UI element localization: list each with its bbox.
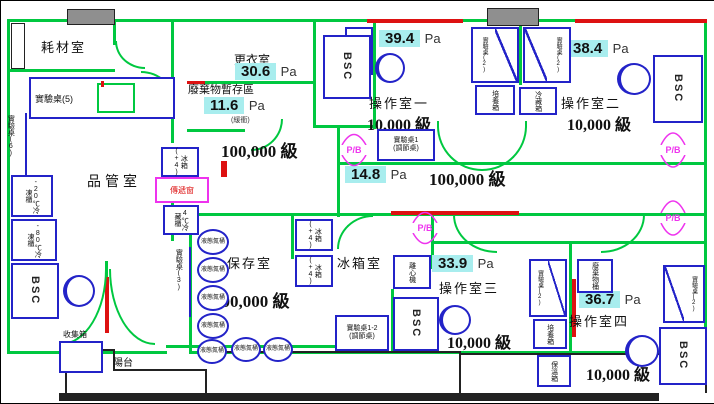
wall-segment	[313, 125, 375, 128]
room-label-storage: 保存室	[227, 253, 272, 272]
bottom-bar	[59, 393, 659, 401]
sink-fixture	[97, 83, 135, 113]
column	[11, 23, 25, 69]
incubator-op1: 培養箱	[475, 85, 515, 115]
stool-icon	[617, 63, 651, 95]
class-label-op2: 10,000 級	[567, 111, 631, 135]
pressure-op2: 38.4 Pa	[567, 40, 629, 58]
pressure-highlight: 33.9	[432, 255, 473, 272]
wall-segment	[7, 69, 115, 72]
window-marker	[221, 161, 227, 177]
pressure-waste: 11.6 Pa	[204, 97, 265, 115]
stool-icon	[439, 305, 471, 335]
hatch-fill	[548, 261, 565, 315]
step-line	[113, 369, 207, 371]
step-line	[205, 369, 207, 393]
cleanroom-floorplan: 耗材室 品管室 更衣室 30.6 Pa 廢棄物暫存區 11.6 Pa (緩衝) …	[0, 0, 714, 404]
collection-box-label: 收集箱	[63, 329, 87, 340]
room-label-op1: 操作室一	[369, 93, 429, 112]
pass-window: 傳遞窗	[155, 177, 209, 203]
ln2-tank: 液態氮桶	[197, 257, 229, 283]
wall-segment	[519, 19, 522, 85]
class-label-corridor-mid: 100,000 級	[429, 165, 506, 190]
door-arc	[115, 41, 145, 69]
ln2-tank: 液態氮桶	[263, 337, 293, 362]
fridge-plus4: 冰箱(+4)	[161, 147, 199, 177]
fridge-plus4: 冰箱(+4)	[295, 255, 333, 287]
pressure-highlight: 39.4	[379, 30, 420, 47]
ln2-tank: 液態氮桶	[197, 229, 229, 255]
passbox-right-lower: P/B	[655, 195, 691, 241]
pressure-changing: 30.6 Pa	[235, 63, 297, 81]
wall-segment	[291, 213, 294, 259]
freezer-minus80: -80℃冷凍櫃	[11, 219, 57, 261]
bench-line	[25, 113, 27, 177]
door-arc	[601, 215, 645, 253]
door-arc	[453, 215, 497, 253]
door-arc	[109, 269, 155, 345]
bench-12-label: 實驗桌1-2 (調節桌)	[335, 315, 389, 351]
passbox-corridor-left: P/B	[337, 131, 371, 169]
wall-segment	[187, 129, 245, 132]
wall-segment	[313, 19, 316, 127]
pressure-op4: 36.7 Pa	[579, 291, 641, 309]
ln2-tank: 液態氮桶	[197, 313, 229, 339]
class-label-corridor-top: 100,000 級	[221, 137, 298, 162]
centrifuge: 離心機	[393, 255, 431, 289]
incubator-op3: 培養箱	[533, 319, 567, 349]
fridge-plus4: 冰箱(+4)	[295, 219, 333, 251]
fixture-marker	[101, 81, 104, 87]
window-marker	[575, 19, 707, 23]
ln2-tank: 液態氮桶	[231, 337, 261, 362]
hvac-block	[67, 9, 115, 25]
bsc-cabinet-top: BSC	[323, 35, 371, 99]
waste-bin-op4: 廢棄物桶	[577, 259, 613, 293]
bsc-cabinet-op3: BSC	[393, 297, 439, 351]
ln2-tank: 液態氮桶	[197, 285, 229, 311]
bench-3: 實驗桌(3)	[175, 249, 182, 315]
room-label-fridge: 冰箱室	[337, 253, 382, 272]
hvac-block	[487, 8, 539, 26]
room-label-consumables: 耗材室	[41, 37, 86, 56]
stool-icon	[63, 275, 95, 307]
ln2-tank: 液態氮桶	[197, 339, 227, 364]
hatch-fill	[665, 267, 684, 321]
pressure-op1: 39.4 Pa	[379, 30, 441, 48]
wall-segment	[189, 213, 339, 216]
fridge-4c: 4℃冷藏櫃	[163, 205, 199, 235]
passbox-corridor-mid: P/B	[407, 209, 443, 247]
wall-segment	[171, 19, 174, 83]
bsc-cabinet-left: BSC	[11, 263, 59, 319]
hatch-fill	[525, 29, 547, 81]
pressure-waste-note: (緩衝)	[231, 115, 250, 125]
hatch-fill	[495, 29, 517, 81]
cold-box-op2: 冷藏箱	[519, 87, 557, 115]
warm-box: 保溫箱	[537, 355, 571, 387]
bench-line	[189, 247, 191, 317]
bench-2-op3: 實驗桌(2)	[529, 259, 567, 317]
bench-2-op1a: 實驗桌(2)	[471, 27, 519, 83]
bsc-cabinet-op2: BSC	[653, 55, 703, 123]
window-marker	[367, 19, 463, 23]
room-label-op3: 操作室三	[439, 278, 499, 297]
pressure-op3: 33.9 Pa	[432, 255, 494, 273]
room-label-op2: 操作室二	[561, 93, 621, 112]
pressure-highlight: 30.6	[235, 63, 276, 80]
bench-2-op4: 實驗桌(2)	[663, 265, 705, 323]
bench-1-label: 實驗桌1 (調節桌)	[377, 129, 435, 161]
stool-icon	[375, 53, 405, 83]
bench-6: 實驗桌(6)	[7, 115, 14, 179]
bsc-cabinet-op4: BSC	[659, 327, 707, 385]
pressure-highlight: 11.6	[204, 97, 244, 114]
room-label-waste: 廢棄物暫存區	[188, 81, 254, 97]
room-label-qc: 品管室	[87, 171, 141, 191]
door-arc	[337, 215, 373, 249]
bench-2-op2a: 實驗桌(2)	[523, 27, 571, 83]
wall-segment	[339, 162, 705, 165]
room-label-balcony: 陽台	[113, 354, 133, 369]
balcony-edge	[459, 351, 461, 393]
collection-box	[59, 341, 103, 373]
pressure-highlight: 36.7	[579, 291, 620, 308]
pressure-highlight: 38.4	[567, 40, 608, 57]
passbox-right-upper: P/B	[655, 127, 691, 173]
freezer-minus20: -20℃冷凍櫃	[11, 175, 53, 217]
stool-icon	[625, 335, 659, 367]
room-label-op4: 操作室四	[569, 311, 629, 330]
